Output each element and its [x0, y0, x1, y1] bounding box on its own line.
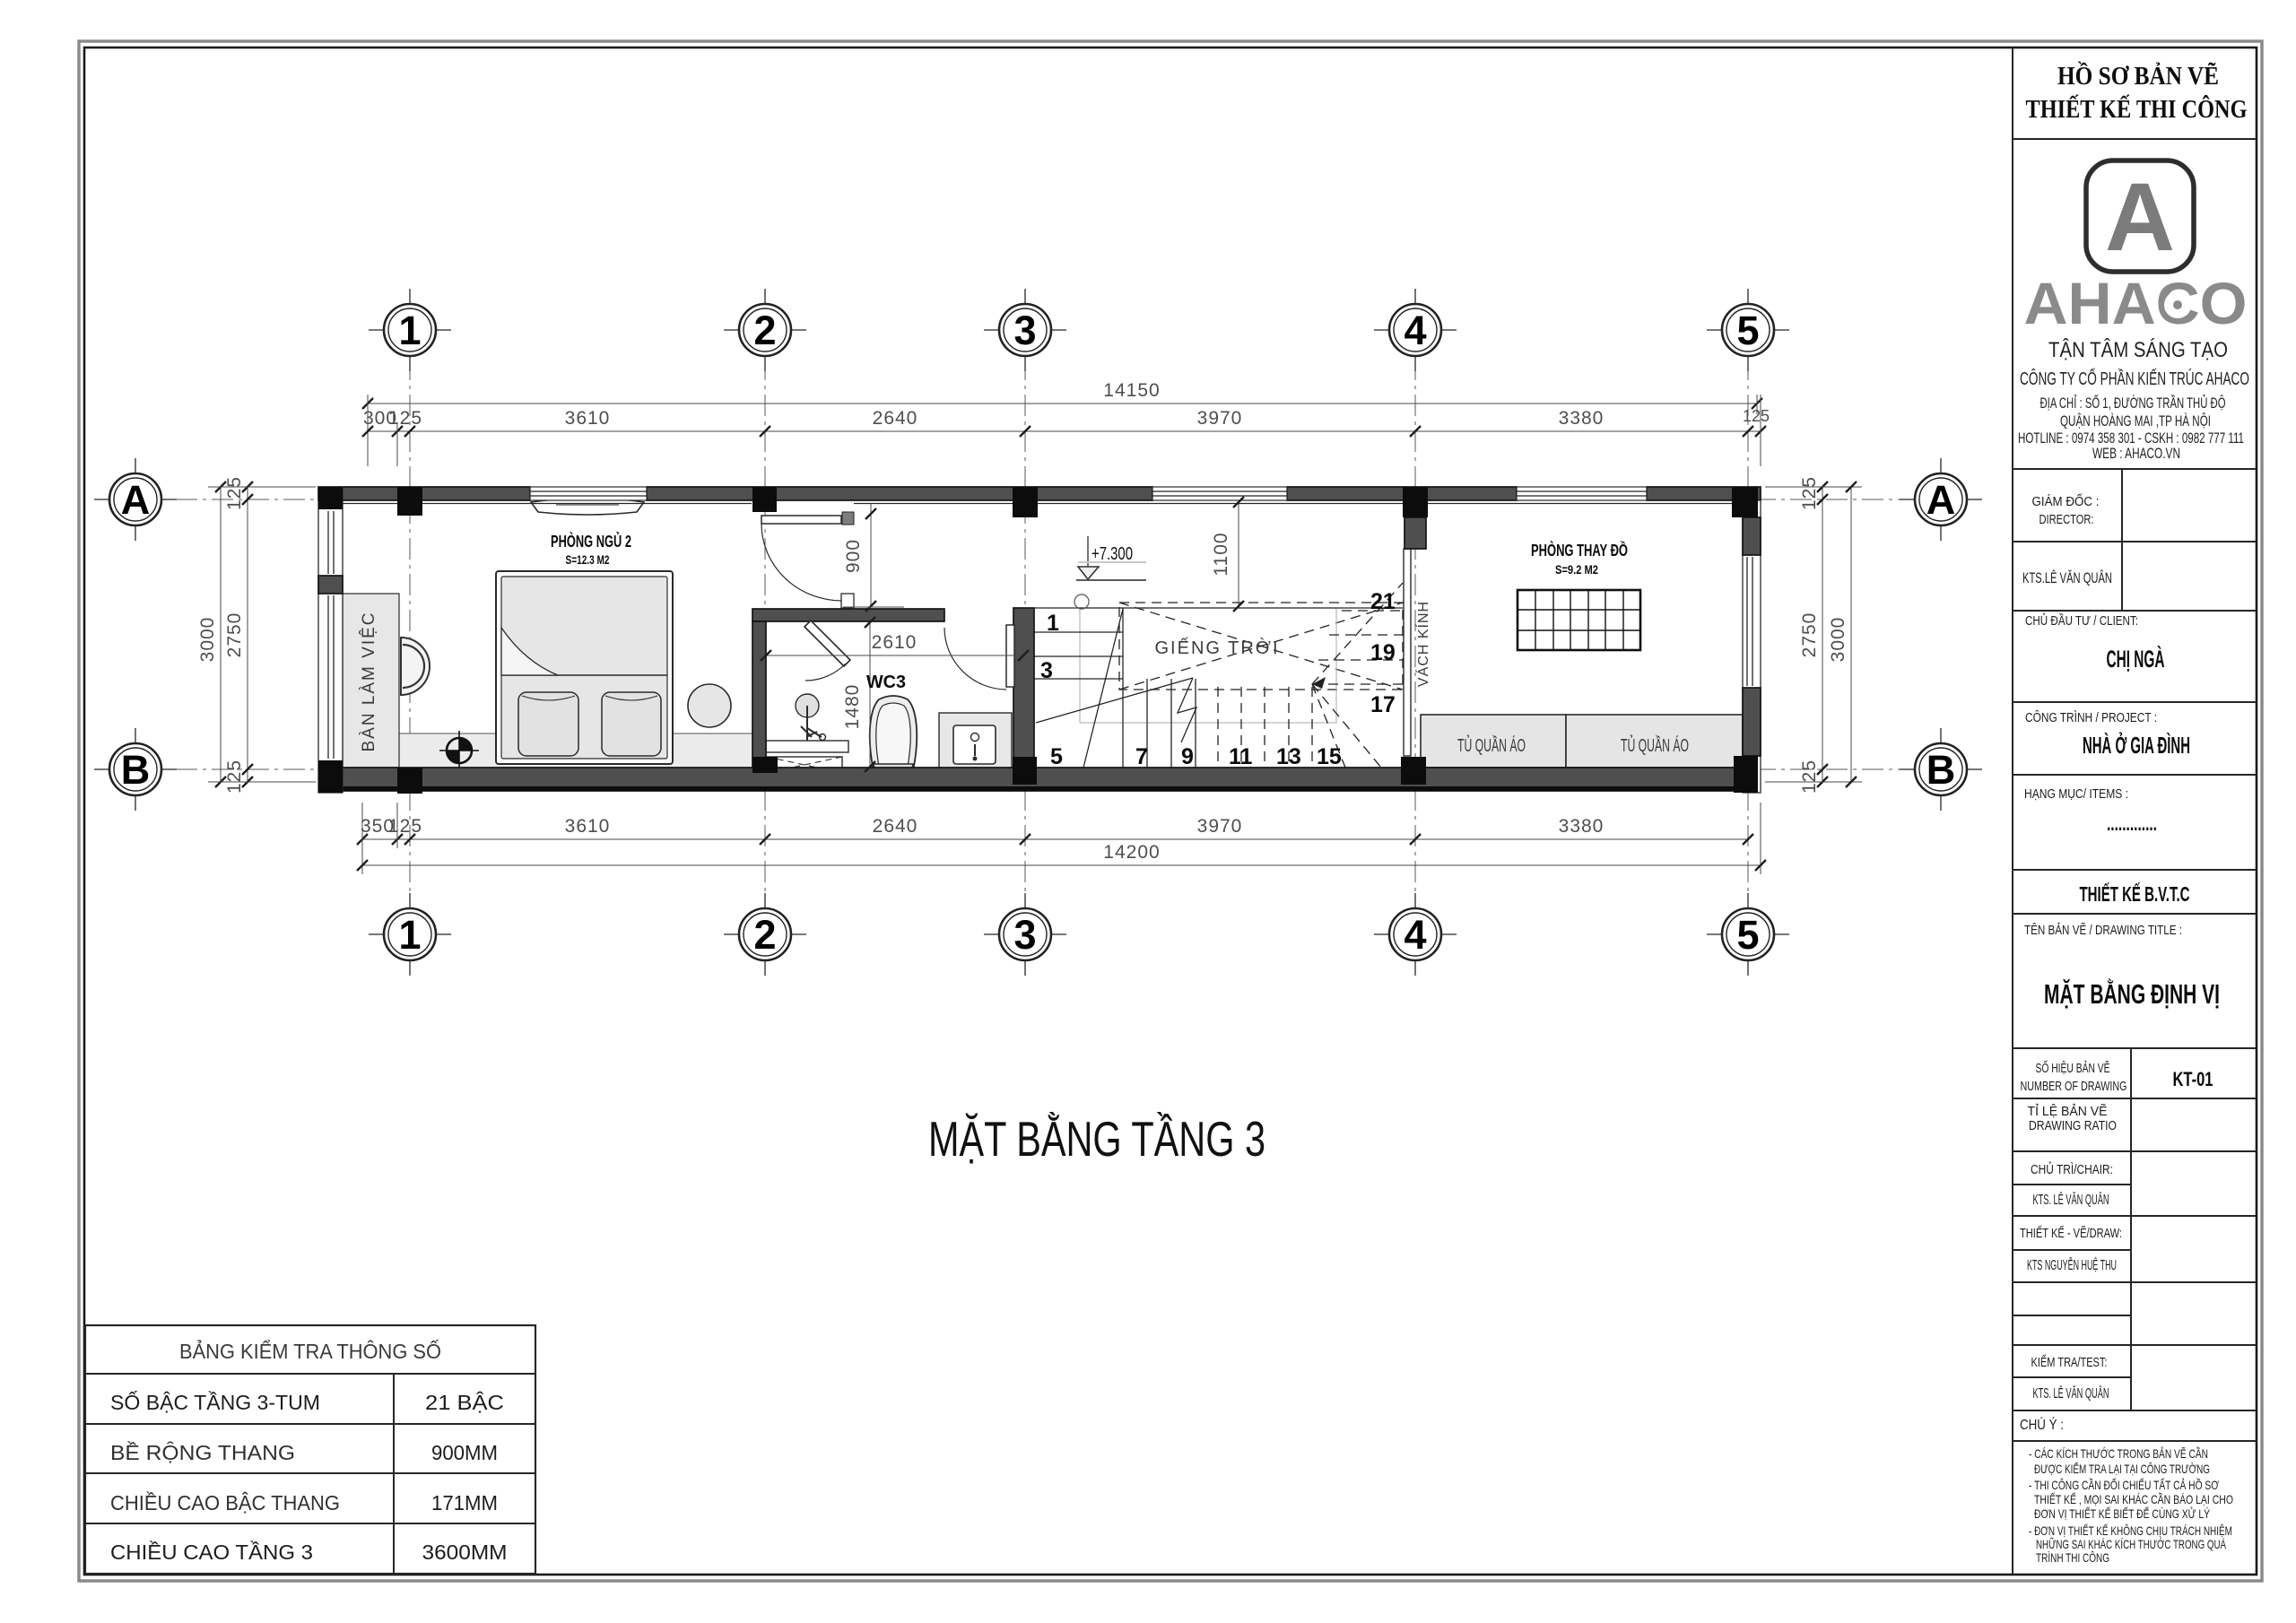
svg-text:SỐ HIỆU BẢN VẼ: SỐ HIỆU BẢN VẼ: [2036, 1060, 2110, 1076]
svg-text:9: 9: [1181, 744, 1194, 769]
svg-text:3600MM: 3600MM: [422, 1541, 508, 1564]
svg-text:SỐ BẬC TẦNG 3-TUM: SỐ BẬC TẦNG 3-TUM: [110, 1390, 320, 1414]
svg-text:125: 125: [224, 759, 245, 794]
svg-text:3970: 3970: [1197, 408, 1243, 429]
svg-text:TỦ QUẦN ÁO: TỦ QUẦN ÁO: [1621, 734, 1689, 756]
svg-text:ĐỊA CHỈ : SỐ 1, ĐƯỜNG TRẦN THỦ: ĐỊA CHỈ : SỐ 1, ĐƯỜNG TRẦN THỦ ĐỘ: [2040, 394, 2226, 412]
svg-text:ĐƯỢC KIỂM TRA LẠI TẠI CÔNG TRƯ: ĐƯỢC KIỂM TRA LẠI TẠI CÔNG TRƯỜNG: [2034, 1461, 2210, 1476]
svg-text:MẶT BẰNG TẦNG 3: MẶT BẰNG TẦNG 3: [928, 1111, 1265, 1167]
svg-text:S=9.2 M2: S=9.2 M2: [1555, 562, 1598, 577]
svg-text:4: 4: [1404, 308, 1426, 353]
svg-text:2640: 2640: [873, 408, 918, 429]
svg-text:A: A: [2105, 162, 2175, 271]
svg-text:BÀN LÀM VIỆC: BÀN LÀM VIỆC: [359, 611, 378, 751]
svg-text:CHỊ NGÀ: CHỊ NGÀ: [2107, 645, 2165, 673]
svg-text:AHACO: AHACO: [2024, 270, 2248, 336]
svg-text:ĐƠN VỊ THIẾT KẾ BIẾT ĐỂ CÙNG X: ĐƠN VỊ THIẾT KẾ BIẾT ĐỂ CÙNG XỬ LÝ: [2034, 1506, 2210, 1521]
svg-text:THIẾT KẾ THI CÔNG: THIẾT KẾ THI CÔNG: [2026, 95, 2248, 124]
svg-text:13: 13: [1276, 744, 1301, 769]
svg-text:S=12.3 M2: S=12.3 M2: [566, 552, 610, 567]
svg-text:TỦ QUẦN ÁO: TỦ QUẦN ÁO: [1457, 734, 1526, 756]
svg-text:QUẬN HOÀNG MAI ,TP HÀ NỘI: QUẬN HOÀNG MAI ,TP HÀ NỘI: [2060, 412, 2211, 430]
svg-text:125: 125: [1743, 407, 1770, 425]
svg-text:4: 4: [1404, 912, 1426, 958]
svg-text:TẬN TÂM SÁNG TẠO: TẬN TÂM SÁNG TẠO: [2048, 338, 2228, 362]
svg-text:2610: 2610: [872, 632, 918, 653]
svg-text:A: A: [121, 477, 151, 523]
svg-text:B: B: [1926, 747, 1956, 793]
svg-text:+7.300: +7.300: [1091, 544, 1133, 564]
svg-text:PHÒNG NGỦ 2: PHÒNG NGỦ 2: [551, 532, 631, 551]
svg-text:3: 3: [1013, 912, 1036, 958]
svg-text:3610: 3610: [565, 816, 611, 837]
svg-text:5: 5: [1736, 912, 1759, 958]
svg-text:KT-01: KT-01: [2173, 1068, 2213, 1090]
svg-text:125: 125: [1799, 759, 1820, 794]
svg-text:2640: 2640: [873, 816, 918, 837]
svg-text:1: 1: [398, 308, 421, 353]
svg-text:NHỮNG SAI KHÁC KÍCH THƯỚC TRON: NHỮNG SAI KHÁC KÍCH THƯỚC TRONG QUÁ: [2036, 1537, 2226, 1551]
svg-text:3610: 3610: [565, 408, 611, 429]
svg-text:.............: .............: [2107, 812, 2157, 835]
svg-text:B: B: [121, 747, 151, 793]
svg-text:KIỂM TRA/TEST:: KIỂM TRA/TEST:: [2031, 1354, 2108, 1370]
svg-text:7: 7: [1135, 744, 1148, 769]
svg-text:171MM: 171MM: [431, 1491, 498, 1515]
svg-text:125: 125: [224, 476, 245, 510]
svg-text:CHIỀU CAO BẬC THANG: CHIỀU CAO BẬC THANG: [110, 1490, 340, 1515]
svg-text:VÁCH KÍNH: VÁCH KÍNH: [1414, 601, 1431, 687]
svg-text:17: 17: [1370, 692, 1396, 717]
svg-text:2750: 2750: [1799, 612, 1820, 658]
svg-text:DIRECTOR:: DIRECTOR:: [2039, 512, 2094, 527]
svg-text:900: 900: [843, 539, 864, 573]
svg-text:MẶT BẰNG ĐỊNH VỊ: MẶT BẰNG ĐỊNH VỊ: [2044, 978, 2220, 1010]
svg-text:GIÁM ĐỐC :: GIÁM ĐỐC :: [2032, 493, 2100, 509]
svg-text:TÊN BẢN VẼ / DRAWING TITLE :: TÊN BẢN VẼ / DRAWING TITLE :: [2024, 923, 2182, 938]
svg-text:WC3: WC3: [866, 673, 906, 692]
svg-text:NUMBER OF DRAWING: NUMBER OF DRAWING: [2021, 1080, 2127, 1094]
svg-text:GIẾNG TRỜI: GIẾNG TRỜI: [1154, 638, 1279, 658]
svg-text:1: 1: [1047, 611, 1059, 636]
svg-text:KTS NGUYỄN HUỆ THU: KTS NGUYỄN HUỆ THU: [2027, 1256, 2117, 1273]
svg-text:3380: 3380: [1559, 816, 1605, 837]
svg-text:BẢNG KIỂM TRA THÔNG SỐ: BẢNG KIỂM TRA THÔNG SỐ: [179, 1338, 441, 1363]
svg-text:900MM: 900MM: [431, 1441, 498, 1464]
svg-text:1480: 1480: [842, 684, 863, 730]
svg-text:5: 5: [1050, 744, 1063, 769]
svg-text:3: 3: [1040, 658, 1053, 683]
svg-text:KTS. LÊ VĂN QUÂN: KTS. LÊ VĂN QUÂN: [2033, 1384, 2109, 1402]
svg-text:14200: 14200: [1103, 842, 1160, 863]
svg-text:125: 125: [388, 408, 422, 429]
svg-text:125: 125: [388, 816, 422, 837]
svg-text:- THI CÔNG CẦN ĐỐI CHIẾU TẤT C: - THI CÔNG CẦN ĐỐI CHIẾU TẤT CẢ HỒ SƠ: [2029, 1477, 2219, 1492]
svg-text:3: 3: [1013, 308, 1036, 353]
svg-text:DRAWING RATIO: DRAWING RATIO: [2029, 1119, 2117, 1133]
svg-text:WEB : AHACO.VN: WEB : AHACO.VN: [2092, 445, 2180, 462]
svg-text:11: 11: [1229, 744, 1253, 769]
svg-text:2: 2: [753, 308, 776, 353]
svg-text:PHÒNG THAY ĐỒ: PHÒNG THAY ĐỒ: [1531, 541, 1628, 560]
svg-text:NHÀ Ở GIA ĐÌNH: NHÀ Ở GIA ĐÌNH: [2083, 731, 2190, 759]
svg-text:CHIỀU CAO TẦNG 3: CHIỀU CAO TẦNG 3: [110, 1540, 313, 1564]
svg-text:THIẾT KẾ B.V.T.C: THIẾT KẾ B.V.T.C: [2080, 881, 2190, 906]
svg-text:KTS.LÊ VĂN QUÂN: KTS.LÊ VĂN QUÂN: [2022, 569, 2112, 586]
svg-text:- ĐƠN VỊ THIẾT KẾ KHÔNG CHỊU T: - ĐƠN VỊ THIẾT KẾ KHÔNG CHỊU TRÁCH NHIỆM: [2029, 1523, 2232, 1538]
svg-text:1: 1: [398, 912, 421, 958]
svg-text:BỀ RỘNG THANG: BỀ RỘNG THANG: [110, 1440, 295, 1464]
svg-text:CÔNG TY CỔ PHẦN KIẾN TRÚC AHAC: CÔNG TY CỔ PHẦN KIẾN TRÚC AHACO: [2020, 368, 2249, 389]
svg-text:HỒ SƠ BẢN VẼ: HỒ SƠ BẢN VẼ: [2057, 62, 2219, 91]
svg-text:3000: 3000: [197, 617, 218, 663]
svg-text:CHÚ Ý :: CHÚ Ý :: [2020, 1416, 2064, 1433]
svg-text:A: A: [1926, 477, 1956, 523]
svg-text:14150: 14150: [1103, 380, 1160, 401]
svg-text:1100: 1100: [1211, 532, 1231, 576]
svg-text:CÔNG TRÌNH / PROJECT :: CÔNG TRÌNH / PROJECT :: [2025, 710, 2157, 725]
svg-text:21: 21: [1370, 589, 1396, 614]
svg-text:3380: 3380: [1559, 408, 1605, 429]
svg-text:CHỦ ĐẦU TƯ / CLIENT:: CHỦ ĐẦU TƯ / CLIENT:: [2025, 612, 2138, 629]
svg-text:THIẾT KẾ , MỌI SAI KHÁC CẦN BÁ: THIẾT KẾ , MỌI SAI KHÁC CẦN BÁO LẠI CHO: [2034, 1492, 2233, 1506]
svg-text:TRÌNH THI CÔNG: TRÌNH THI CÔNG: [2036, 1550, 2109, 1565]
svg-text:KTS. LÊ VĂN QUÂN: KTS. LÊ VĂN QUÂN: [2033, 1191, 2109, 1208]
svg-text:HẠNG MỤC/ ITEMS :: HẠNG MỤC/ ITEMS :: [2024, 786, 2128, 802]
svg-text:2750: 2750: [224, 612, 245, 658]
svg-text:19: 19: [1370, 640, 1396, 665]
svg-text:- CÁC KÍCH THƯỚC TRONG BẢN VẼ: - CÁC KÍCH THƯỚC TRONG BẢN VẼ CẦN: [2029, 1446, 2208, 1461]
svg-text:2: 2: [753, 912, 776, 958]
svg-text:3000: 3000: [1828, 617, 1848, 663]
svg-text:3970: 3970: [1197, 816, 1243, 837]
svg-text:TỈ LỆ BẢN VẼ: TỈ LỆ BẢN VẼ: [2028, 1104, 2108, 1119]
svg-text:5: 5: [1736, 308, 1759, 353]
svg-text:125: 125: [1799, 476, 1820, 510]
svg-text:CHỦ TRÌ/CHAIR:: CHỦ TRÌ/CHAIR:: [2031, 1161, 2113, 1177]
svg-text:21 BẬC: 21 BẬC: [425, 1391, 504, 1414]
svg-text:THIẾT KẾ - VẼ/DRAW:: THIẾT KẾ - VẼ/DRAW:: [2020, 1226, 2122, 1241]
